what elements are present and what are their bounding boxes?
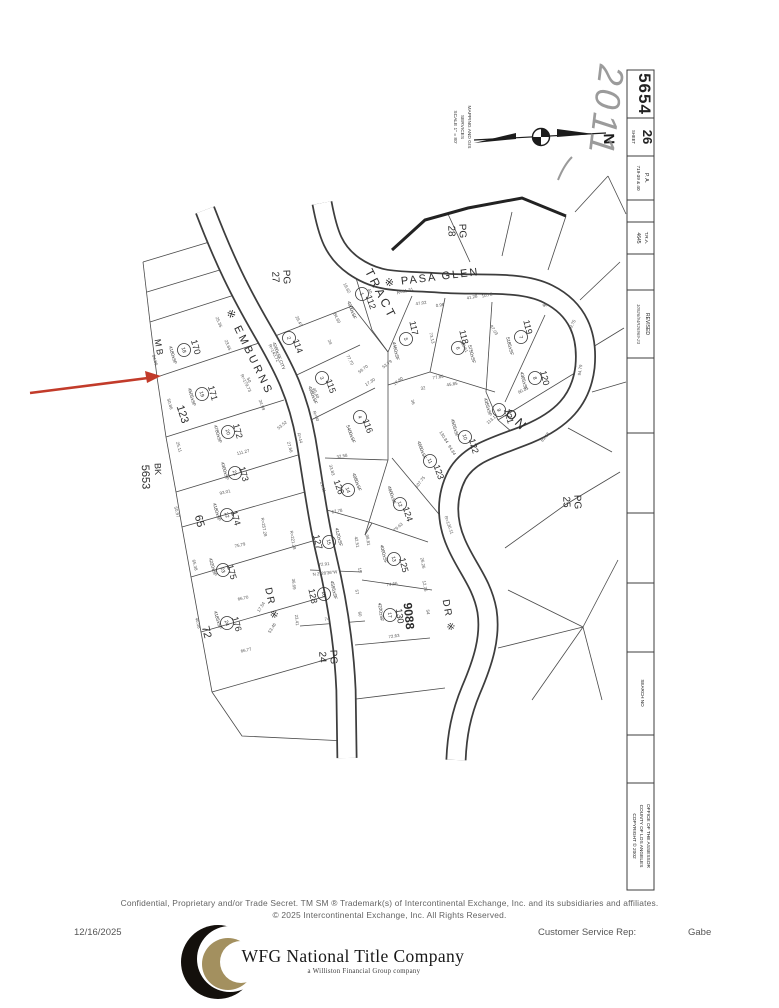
map-label: 5653 — [139, 465, 152, 490]
map-label: 115 — [324, 378, 338, 395]
book-number: 5654 — [635, 73, 654, 115]
confidential-text: Confidential, Proprietary and/or Trade S… — [0, 898, 779, 910]
map-label: 66.77 — [240, 646, 252, 653]
map-label: 4505±SF — [187, 387, 197, 406]
map-label: M B — [153, 338, 166, 356]
map-label: 79.63 — [392, 521, 404, 532]
map-label: R=90 — [312, 410, 321, 422]
map-label: 5 — [402, 337, 408, 341]
map-label: 98.81 — [365, 534, 372, 546]
map-label: 53.52 — [276, 419, 288, 430]
map-label: 75.79 — [234, 541, 246, 548]
map-label: 19.62 — [342, 282, 352, 295]
map-label: 27.66 — [286, 441, 294, 453]
office-line-3: COPYRIGHT © 2002 — [631, 813, 638, 859]
map-label: 124 — [401, 505, 415, 522]
map-label: 25.35 — [215, 316, 224, 329]
map-label: 50.86 — [166, 398, 174, 410]
tract-boundary-line — [392, 198, 566, 250]
map-label: 23 — [219, 567, 226, 574]
pa-label: P. A. — [643, 173, 649, 183]
wfg-logo: WFG National Title Company a Williston F… — [0, 922, 779, 1008]
map-label: 6 — [454, 346, 461, 350]
map-label: 123 — [174, 404, 191, 425]
map-label: 64.86 — [151, 354, 159, 366]
map-label: 12.76 — [422, 580, 429, 592]
sheet-label: SHEET — [631, 130, 636, 144]
map-label: 172 — [231, 422, 245, 439]
map-label: PG — [327, 650, 339, 665]
map-label: DR ※ — [440, 599, 457, 634]
map-label: 18 — [180, 347, 187, 354]
search-no-label: SEARCH NO — [640, 679, 645, 707]
map-label: 25.11 — [175, 441, 183, 453]
pointer-arrow — [30, 371, 161, 393]
map-label: 0.96 — [435, 302, 445, 308]
map-label: 67.78 — [331, 508, 343, 515]
map-label: 54 — [425, 609, 431, 615]
map-label: 170 — [189, 338, 203, 355]
map-label: 23.65 — [224, 339, 233, 352]
map-label: 15 — [357, 567, 363, 573]
svg-text:SERVICES: SERVICES — [459, 115, 465, 139]
map-label: 4220±SF — [377, 602, 385, 621]
map-label: 65 — [192, 514, 207, 529]
map-label: 7 — [517, 335, 524, 339]
map-label: 17.30 — [364, 377, 376, 387]
map-label: 50.97 — [173, 506, 181, 518]
tra-value: 4645 — [635, 232, 641, 243]
map-label: 107.75 — [414, 475, 427, 489]
map-label: 17.54 — [256, 601, 266, 613]
pa-value: 719-39 & 40 — [636, 165, 641, 190]
map-label: 175 — [225, 563, 239, 580]
map-label: 23.41 — [294, 614, 300, 626]
pencil-mark — [558, 157, 572, 180]
tra-label: T.R.A. — [644, 232, 649, 245]
map-label: 84.60 — [332, 312, 342, 325]
map-label: 116 — [361, 418, 375, 435]
map-label: 94.84 — [447, 444, 457, 456]
wfg-logo-title: WFG National Title Company — [242, 946, 465, 967]
revised-value: 10926/94R26969-23 — [636, 304, 641, 345]
street-pasa-glen-dr — [322, 203, 586, 760]
map-label: 128 — [306, 588, 319, 605]
map-label: 9 — [495, 408, 502, 413]
svg-text:MAPPING AND GIS: MAPPING AND GIS — [466, 106, 472, 149]
map-label: 5750±SF — [467, 344, 476, 363]
map-label: 4460±SF — [392, 341, 401, 360]
north-arrow-fletch — [474, 133, 516, 143]
map-label: 17 — [386, 612, 393, 619]
map-label: PG — [280, 270, 292, 285]
map-label: 176 — [230, 615, 244, 632]
plat-map: ※ EMBURNSDR ※※ PASA GLENDR ※TRACTON9088M… — [0, 0, 779, 910]
map-label: 25 — [560, 496, 571, 508]
map-label: 93.01 — [219, 488, 231, 496]
map-label: 111.27 — [236, 448, 250, 456]
map-label: 22 — [223, 512, 230, 519]
revised-label: REVISED — [644, 313, 650, 335]
map-label: 41.28 — [466, 293, 478, 300]
map-label: 13 — [390, 556, 397, 563]
sheet-number: 26 — [640, 130, 655, 144]
map-label: 77.70 — [345, 354, 355, 367]
map-label: 114 — [291, 338, 305, 355]
map-label: 4220±SF — [208, 557, 218, 576]
map-label: 42.51 — [354, 536, 361, 548]
map-label: 125 — [397, 557, 410, 574]
scanned-plat-map-page: ※ EMBURNSDR ※※ PASA GLENDR ※TRACTON9088M… — [0, 0, 779, 1008]
map-label: 19 — [198, 391, 205, 398]
map-label: 5185±SF — [505, 336, 514, 355]
map-label: 20 — [224, 429, 231, 436]
map-label: 65.38 — [191, 559, 199, 571]
map-label: 4000±SF — [379, 544, 388, 563]
pointer-arrow-head — [145, 371, 161, 383]
map-label: 47.02 — [415, 300, 427, 307]
map-label: 53.79 — [381, 358, 393, 369]
map-label: 119 — [521, 319, 534, 335]
svg-text:SCALE 1" = 80': SCALE 1" = 80' — [452, 110, 458, 143]
map-label: 74.66 — [386, 581, 398, 588]
map-label: 4780±SF — [213, 424, 223, 443]
map-label: 60 — [357, 611, 363, 617]
map-label: 4180±SF — [212, 502, 222, 521]
map-label: 21 — [231, 470, 238, 477]
map-label: 24 — [327, 339, 334, 346]
map-label: 126 — [332, 478, 347, 496]
map-label: 4080±SF — [351, 472, 362, 491]
map-label: 130.84 — [438, 430, 450, 445]
map-label: 66.70 — [237, 594, 249, 601]
map-label: 4180±SF — [168, 345, 178, 364]
map-label: 5400±SF — [345, 424, 356, 443]
map-label: BK — [153, 463, 163, 475]
office-line-2: COUNTY OF LOS ANGELES — [638, 805, 644, 868]
office-line-1: OFFICE OF THE ASSESSOR — [645, 804, 651, 868]
map-label: 14 — [344, 487, 352, 494]
map-label: 24.99 — [258, 399, 267, 412]
map-label: 4355±SF — [483, 397, 493, 416]
rights-text: © 2025 Intercontinental Exchange, Inc. A… — [0, 910, 779, 922]
wfg-logo-subtitle: a Williston Financial Group company — [308, 968, 421, 975]
map-label: 72.63 — [388, 633, 400, 640]
map-label: 8 — [531, 376, 538, 380]
map-label: 4600±SF — [387, 485, 398, 504]
map-label: 174 — [229, 509, 243, 526]
map-label: PG — [571, 495, 583, 510]
handwritten-year: 2011 — [580, 62, 632, 161]
map-label: 4000±SF — [346, 300, 357, 319]
map-label: R=257.28 — [260, 517, 268, 537]
map-label: 4660±SF — [416, 440, 427, 459]
map-label: 45.85 — [446, 381, 458, 388]
map-label: 120 — [538, 370, 551, 387]
map-label: 36 — [410, 399, 416, 406]
map-label: 73.13 — [428, 332, 436, 344]
map-label: 59.70 — [357, 363, 369, 374]
map-label: 32 — [420, 385, 426, 391]
map-label: 11 — [426, 458, 433, 465]
map-label: 10.72 — [481, 291, 493, 298]
map-label: 28 — [445, 225, 456, 237]
map-label: 4 — [356, 415, 363, 420]
map-label: 4505±SF — [450, 418, 460, 437]
map-sidebar — [627, 70, 654, 890]
map-label: 27 — [269, 271, 280, 283]
map-label: 33.83 — [328, 464, 336, 476]
map-label: 26.26 — [420, 557, 427, 569]
map-label: PG — [456, 224, 468, 239]
map-label: 130 — [394, 608, 406, 624]
map-label: 40.08 — [194, 617, 202, 629]
compass-caption: MAPPING AND GIS SERVICES SCALE 1" = 80' — [452, 106, 472, 149]
map-label: 24 — [316, 651, 327, 663]
pointer-arrow-shaft — [30, 378, 148, 393]
map-label: 77.85 — [432, 374, 444, 381]
map-label: 53.46 — [267, 622, 277, 634]
map-label: 36.69 — [291, 578, 297, 590]
map-label: 4185±SF — [213, 610, 223, 629]
map-label: 57 — [354, 589, 360, 595]
